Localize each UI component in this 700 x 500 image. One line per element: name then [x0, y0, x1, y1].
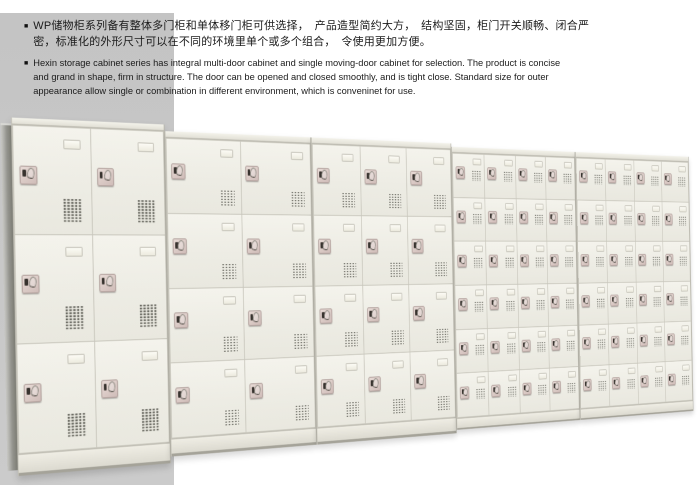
- cabinet-four-col-six-row: [451, 147, 580, 430]
- label-holder: [566, 288, 574, 295]
- locker-door: [609, 323, 637, 364]
- lock-with-key-icon: [97, 168, 114, 187]
- locker-bank: [1, 117, 694, 477]
- lock-with-key-icon: [99, 274, 116, 293]
- vent-grid-icon: [222, 264, 236, 279]
- label-holder: [682, 365, 689, 371]
- vent-grid-icon: [344, 263, 357, 277]
- lock-with-key-icon: [612, 377, 620, 389]
- locker-door: [168, 214, 243, 288]
- label-holder: [291, 152, 303, 160]
- lock-with-key-icon: [246, 238, 260, 254]
- lock-with-key-icon: [174, 313, 188, 329]
- vent-grid-icon: [506, 301, 515, 311]
- vent-grid-icon: [393, 399, 405, 414]
- locker-door: [453, 154, 485, 198]
- label-holder: [506, 289, 514, 296]
- label-holder: [595, 163, 603, 170]
- locker-door: [662, 202, 689, 241]
- locker-door: [638, 362, 666, 403]
- cabinet-four-col-six-row-far: [575, 152, 693, 420]
- locker-door: [576, 158, 605, 200]
- vent-grid-icon: [536, 300, 545, 310]
- label-holder: [627, 327, 635, 333]
- vent-grid-icon: [566, 299, 575, 309]
- vent-grid-icon: [504, 172, 513, 182]
- locker-door: [606, 201, 634, 241]
- lock-with-key-icon: [22, 275, 40, 294]
- lock-with-key-icon: [610, 254, 618, 266]
- lock-with-key-icon: [491, 384, 500, 397]
- label-holder: [568, 371, 576, 378]
- lock-with-key-icon: [608, 172, 616, 184]
- lock-with-key-icon: [610, 295, 618, 307]
- label-holder: [433, 157, 444, 165]
- label-holder: [508, 375, 516, 382]
- vent-grid-icon: [345, 332, 358, 346]
- label-holder: [536, 246, 544, 252]
- locker-door: [488, 328, 519, 372]
- locker-door: [409, 284, 454, 352]
- vent-grid-icon: [293, 263, 306, 277]
- lock-with-key-icon: [317, 168, 330, 183]
- locker-door: [243, 286, 313, 359]
- vent-grid-icon: [536, 258, 545, 268]
- locker-door: [454, 242, 486, 285]
- lock-with-key-icon: [664, 174, 672, 186]
- vent-grid-icon: [474, 258, 483, 268]
- lock-with-key-icon: [550, 254, 559, 266]
- label-holder: [651, 165, 658, 171]
- vent-grid-icon: [627, 379, 635, 389]
- lock-with-key-icon: [175, 387, 189, 404]
- lock-with-key-icon: [581, 296, 590, 308]
- vent-grid-icon: [292, 192, 305, 207]
- label-holder: [681, 285, 688, 291]
- locker-door: [665, 361, 692, 402]
- locker-door: [519, 326, 549, 369]
- lock-with-key-icon: [521, 297, 530, 309]
- locker-door: [546, 200, 575, 242]
- vent-grid-icon: [598, 340, 606, 350]
- door-grid: [576, 158, 693, 409]
- vent-grid-icon: [595, 175, 603, 185]
- locker-door: [15, 235, 94, 343]
- chinese-paragraph: ■ WP储物柜系列备有整体多门柜和单体移门柜可供选择， 产品造型简约大方， 结构…: [24, 19, 624, 50]
- lock-with-key-icon: [489, 254, 498, 266]
- label-holder: [652, 205, 659, 211]
- lock-with-key-icon: [552, 381, 561, 394]
- locker-door: [608, 283, 636, 324]
- english-description: Hexin storage cabinet series has integra…: [33, 56, 560, 98]
- locker-door: [363, 285, 410, 354]
- vent-grid-icon: [472, 171, 481, 181]
- vent-grid-icon: [597, 298, 605, 308]
- lock-with-key-icon: [460, 386, 470, 399]
- cabinet-two-col-four-row: [165, 131, 317, 456]
- chinese-description: WP储物柜系列备有整体多门柜和单体移门柜可供选择， 产品造型简约大方， 结构坚固…: [33, 19, 589, 50]
- vent-grid-icon: [596, 257, 604, 266]
- vent-grid-icon: [475, 302, 484, 312]
- locker-door: [171, 360, 245, 437]
- vent-grid-icon: [537, 342, 546, 352]
- vent-grid-icon: [567, 341, 576, 351]
- locker-door: [549, 325, 578, 368]
- locker-door: [580, 324, 609, 366]
- label-holder: [624, 164, 632, 170]
- vent-grid-icon: [538, 385, 547, 395]
- label-holder: [344, 293, 356, 301]
- label-holder: [597, 287, 605, 293]
- lock-with-key-icon: [667, 334, 675, 346]
- label-holder: [142, 351, 158, 361]
- label-holder: [654, 286, 661, 292]
- locker-door: [486, 242, 517, 285]
- lock-with-key-icon: [548, 170, 557, 182]
- label-holder: [138, 142, 154, 152]
- label-holder: [653, 246, 660, 252]
- lock-with-key-icon: [171, 163, 185, 179]
- label-holder: [535, 203, 543, 210]
- lock-with-key-icon: [458, 298, 468, 311]
- lock-with-key-icon: [368, 376, 380, 391]
- label-holder: [679, 166, 686, 172]
- label-holder: [507, 332, 515, 339]
- catalog-page: ■ WP储物柜系列备有整体多门柜和单体移门柜可供选择， 产品造型简约大方， 结构…: [0, 0, 700, 500]
- lock-with-key-icon: [459, 342, 469, 355]
- lock-with-key-icon: [366, 239, 378, 254]
- label-holder: [597, 246, 605, 252]
- lock-with-key-icon: [456, 167, 466, 180]
- locker-door: [315, 285, 363, 356]
- lock-with-key-icon: [413, 306, 425, 321]
- vent-grid-icon: [681, 336, 689, 345]
- vent-grid-icon: [653, 297, 661, 306]
- locker-door: [406, 148, 451, 216]
- locker-door: [518, 284, 548, 327]
- lock-with-key-icon: [636, 173, 644, 185]
- locker-door: [635, 242, 663, 282]
- label-holder: [435, 224, 446, 232]
- lock-with-key-icon: [521, 340, 530, 353]
- lock-with-key-icon: [640, 375, 648, 387]
- vent-grid-icon: [296, 405, 309, 420]
- lock-with-key-icon: [551, 338, 560, 350]
- locker-door: [519, 369, 549, 413]
- lock-with-key-icon: [410, 171, 422, 186]
- label-holder: [564, 162, 572, 169]
- label-holder: [537, 288, 545, 295]
- label-holder: [599, 369, 607, 376]
- door-grid: [166, 138, 316, 439]
- vent-grid-icon: [679, 217, 687, 226]
- locker-door: [454, 198, 486, 241]
- vent-grid-icon: [140, 304, 158, 327]
- label-holder: [223, 296, 236, 305]
- label-holder: [473, 159, 482, 166]
- vent-grid-icon: [682, 376, 690, 386]
- locker-door: [549, 367, 578, 410]
- lock-with-key-icon: [367, 308, 379, 323]
- vent-grid-icon: [626, 338, 634, 348]
- vent-grid-icon: [652, 217, 660, 226]
- vent-grid-icon: [626, 298, 634, 308]
- locker-door: [661, 162, 688, 202]
- label-holder: [67, 354, 84, 364]
- vent-grid-icon: [624, 216, 632, 225]
- cabinet-three-col-four-row: [311, 137, 457, 444]
- lock-with-key-icon: [412, 239, 424, 253]
- locker-door: [457, 372, 489, 417]
- label-holder: [596, 204, 604, 210]
- lock-with-key-icon: [520, 254, 529, 266]
- lock-with-key-icon: [245, 166, 259, 182]
- label-holder: [140, 247, 156, 257]
- lock-with-key-icon: [101, 380, 118, 399]
- locker-door: [455, 285, 487, 329]
- lock-with-key-icon: [490, 298, 499, 311]
- lock-with-key-icon: [638, 254, 646, 266]
- catalog-photo: [1, 99, 700, 477]
- locker-door: [579, 283, 608, 324]
- locker-door: [577, 200, 606, 241]
- locker-door: [664, 321, 691, 361]
- lock-with-key-icon: [488, 211, 497, 223]
- label-holder: [437, 358, 448, 366]
- locker-door: [408, 216, 453, 283]
- lock-with-key-icon: [665, 254, 673, 265]
- locker-door: [93, 235, 167, 340]
- lock-with-key-icon: [457, 255, 467, 268]
- locker-door: [663, 242, 690, 281]
- vent-grid-icon: [654, 337, 662, 347]
- label-holder: [474, 202, 483, 209]
- locker-door: [635, 201, 663, 241]
- english-paragraph: ■ Hexin storage cabinet series has integ…: [24, 56, 624, 98]
- lock-with-key-icon: [639, 294, 647, 306]
- label-holder: [682, 325, 689, 331]
- label-holder: [388, 155, 399, 163]
- label-holder: [624, 205, 632, 211]
- locker-door: [609, 364, 637, 406]
- locker-door: [313, 145, 361, 215]
- vent-grid-icon: [568, 383, 577, 393]
- locker-door: [364, 353, 410, 424]
- locker-door: [317, 355, 365, 427]
- vent-grid-icon: [680, 257, 688, 266]
- locker-door: [664, 282, 691, 322]
- label-holder: [505, 203, 513, 210]
- locker-door: [545, 157, 574, 199]
- label-holder: [294, 294, 306, 302]
- label-holder: [292, 223, 304, 231]
- lock-with-key-icon: [19, 166, 37, 185]
- label-holder: [391, 292, 402, 300]
- vent-grid-icon: [225, 410, 239, 426]
- vent-grid-icon: [435, 262, 447, 276]
- vent-grid-icon: [221, 190, 235, 205]
- locker-door: [362, 216, 409, 285]
- label-holder: [626, 286, 634, 292]
- locker-door: [548, 284, 577, 326]
- square-bullet-icon: ■: [24, 22, 28, 32]
- lock-with-key-icon: [456, 211, 466, 224]
- vent-grid-icon: [564, 174, 573, 184]
- lock-with-key-icon: [609, 213, 617, 225]
- vent-grid-icon: [651, 176, 659, 185]
- locker-door: [242, 215, 312, 287]
- label-holder: [506, 246, 514, 253]
- lock-with-key-icon: [611, 336, 619, 348]
- lock-with-key-icon: [549, 212, 558, 224]
- lock-with-key-icon: [668, 373, 676, 385]
- locker-door: [17, 342, 96, 453]
- door-grid: [12, 125, 170, 455]
- locker-door: [91, 129, 165, 235]
- lock-with-key-icon: [522, 382, 531, 395]
- lock-with-key-icon: [173, 238, 187, 254]
- label-holder: [598, 328, 606, 335]
- vent-grid-icon: [655, 377, 663, 387]
- label-holder: [679, 206, 686, 212]
- vent-grid-icon: [65, 306, 84, 330]
- lock-with-key-icon: [582, 337, 591, 349]
- lock-with-key-icon: [248, 311, 262, 327]
- label-holder: [220, 149, 233, 158]
- locker-door: [13, 126, 92, 235]
- vent-grid-icon: [534, 173, 543, 183]
- vent-grid-icon: [505, 258, 514, 268]
- label-holder: [65, 247, 82, 257]
- door-grid: [312, 144, 456, 428]
- label-holder: [566, 246, 574, 252]
- locker-door: [484, 155, 515, 198]
- label-holder: [474, 246, 483, 253]
- lock-with-key-icon: [579, 171, 588, 183]
- lock-with-key-icon: [491, 341, 500, 354]
- label-holder: [342, 154, 354, 162]
- label-holder: [343, 224, 355, 232]
- locker-door: [637, 322, 665, 363]
- locker-door: [240, 142, 311, 215]
- vent-grid-icon: [504, 215, 513, 225]
- label-holder: [538, 373, 546, 380]
- locker-door: [607, 242, 635, 282]
- vent-grid-icon: [599, 381, 607, 391]
- lock-with-key-icon: [320, 309, 333, 324]
- vent-grid-icon: [390, 262, 402, 276]
- vent-grid-icon: [623, 175, 631, 185]
- locker-door: [580, 365, 609, 408]
- vent-grid-icon: [508, 387, 517, 397]
- lock-with-key-icon: [665, 214, 673, 225]
- lock-with-key-icon: [583, 379, 592, 391]
- vent-grid-icon: [223, 337, 237, 352]
- locker-door: [166, 139, 241, 214]
- vent-grid-icon: [346, 402, 359, 417]
- vent-grid-icon: [142, 408, 160, 432]
- vent-grid-icon: [138, 200, 156, 223]
- locker-door: [169, 287, 244, 362]
- label-holder: [346, 363, 358, 371]
- locker-door: [485, 198, 516, 241]
- lock-with-key-icon: [321, 379, 334, 395]
- locker-door: [606, 160, 634, 201]
- vent-grid-icon: [564, 216, 573, 226]
- label-holder: [221, 223, 234, 231]
- cabinet-two-col-three-row: [11, 118, 171, 477]
- locker-door: [95, 339, 169, 447]
- vent-grid-icon: [294, 334, 307, 349]
- locker-door: [314, 215, 362, 285]
- label-holder: [504, 160, 512, 167]
- label-holder: [476, 333, 485, 340]
- lock-with-key-icon: [364, 169, 376, 184]
- vent-grid-icon: [678, 177, 686, 186]
- locker-door: [517, 242, 547, 284]
- vent-grid-icon: [565, 257, 574, 267]
- locker-door: [245, 357, 315, 432]
- intro-text-block: ■ WP储物柜系列备有整体多门柜和单体移门柜可供选择， 产品造型简约大方， 结构…: [24, 19, 624, 98]
- square-bullet-icon: ■: [24, 59, 28, 69]
- locker-door: [578, 242, 607, 283]
- vent-grid-icon: [67, 413, 86, 438]
- vent-grid-icon: [595, 216, 603, 225]
- locker-door: [547, 242, 576, 284]
- label-holder: [436, 291, 447, 299]
- lock-with-key-icon: [518, 169, 527, 181]
- locker-door: [410, 351, 455, 420]
- locker-door: [516, 199, 546, 241]
- vent-grid-icon: [653, 257, 661, 266]
- locker-door: [636, 282, 664, 322]
- vent-grid-icon: [681, 296, 689, 305]
- label-holder: [538, 331, 546, 338]
- label-holder: [625, 246, 633, 252]
- label-holder: [628, 368, 636, 375]
- vent-grid-icon: [392, 331, 404, 345]
- label-holder: [567, 329, 575, 336]
- label-holder: [477, 377, 486, 384]
- vent-grid-icon: [438, 396, 450, 410]
- lock-with-key-icon: [24, 383, 42, 403]
- label-holder: [392, 361, 403, 369]
- label-holder: [63, 139, 80, 149]
- vent-grid-icon: [507, 344, 516, 354]
- lock-with-key-icon: [414, 374, 426, 389]
- vent-grid-icon: [434, 195, 446, 209]
- label-holder: [534, 161, 542, 168]
- vent-grid-icon: [476, 345, 485, 355]
- vent-grid-icon: [535, 215, 544, 225]
- vent-grid-icon: [389, 194, 401, 208]
- lock-with-key-icon: [318, 238, 331, 253]
- locker-door: [489, 370, 520, 414]
- locker-door: [515, 156, 545, 199]
- lock-with-key-icon: [249, 383, 263, 399]
- lock-with-key-icon: [666, 294, 674, 306]
- vent-grid-icon: [477, 389, 486, 400]
- vent-grid-icon: [625, 257, 633, 266]
- label-holder: [655, 326, 662, 332]
- lock-with-key-icon: [580, 212, 589, 224]
- label-holder: [680, 246, 687, 252]
- vent-grid-icon: [63, 199, 82, 223]
- vent-grid-icon: [437, 329, 449, 343]
- label-holder: [565, 204, 573, 210]
- locker-door: [360, 147, 407, 216]
- label-holder: [655, 366, 662, 373]
